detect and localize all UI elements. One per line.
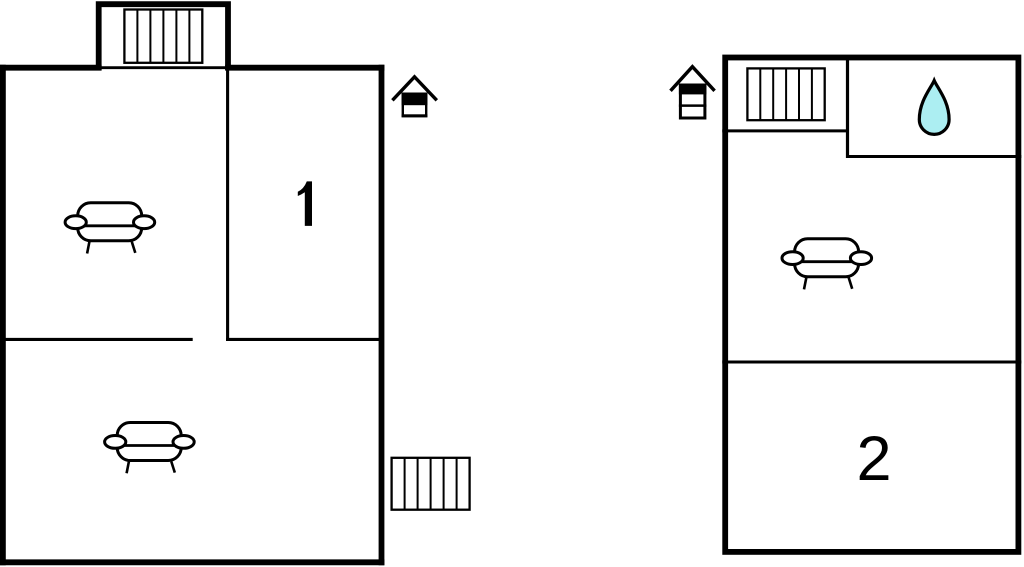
svg-text:2: 2 — [856, 424, 891, 494]
